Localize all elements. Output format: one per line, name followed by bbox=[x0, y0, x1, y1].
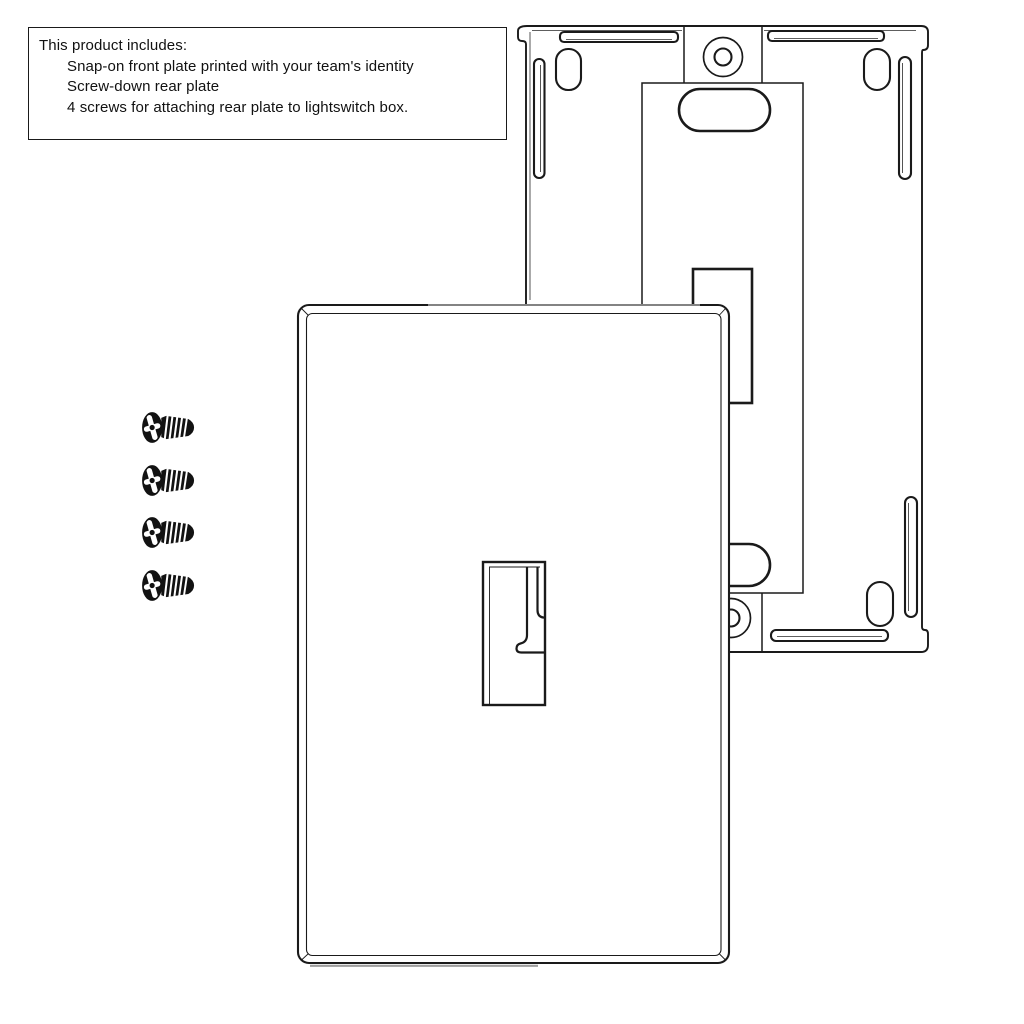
product-info-box: This product includes: Snap-on front pla… bbox=[28, 27, 507, 140]
screw-illustration-4 bbox=[140, 571, 194, 601]
info-box-title: This product includes: bbox=[39, 36, 500, 57]
screw-illustration-1 bbox=[140, 413, 194, 443]
lightswitch-plate-diagram bbox=[0, 0, 1024, 1024]
toggle-switch-opening bbox=[483, 562, 545, 705]
info-item-front-plate: Snap-on front plate printed with your te… bbox=[67, 57, 500, 78]
front-plate-drawing bbox=[298, 305, 729, 966]
info-item-screws: 4 screws for attaching rear plate to lig… bbox=[67, 98, 500, 119]
screw-illustration-2 bbox=[140, 466, 194, 496]
product-diagram-page: This product includes: Snap-on front pla… bbox=[0, 0, 1024, 1024]
toggle-cutout bbox=[483, 562, 545, 705]
info-item-rear-plate: Screw-down rear plate bbox=[67, 77, 500, 98]
screw-illustration-3 bbox=[140, 518, 194, 548]
screws-drawing bbox=[140, 413, 194, 601]
